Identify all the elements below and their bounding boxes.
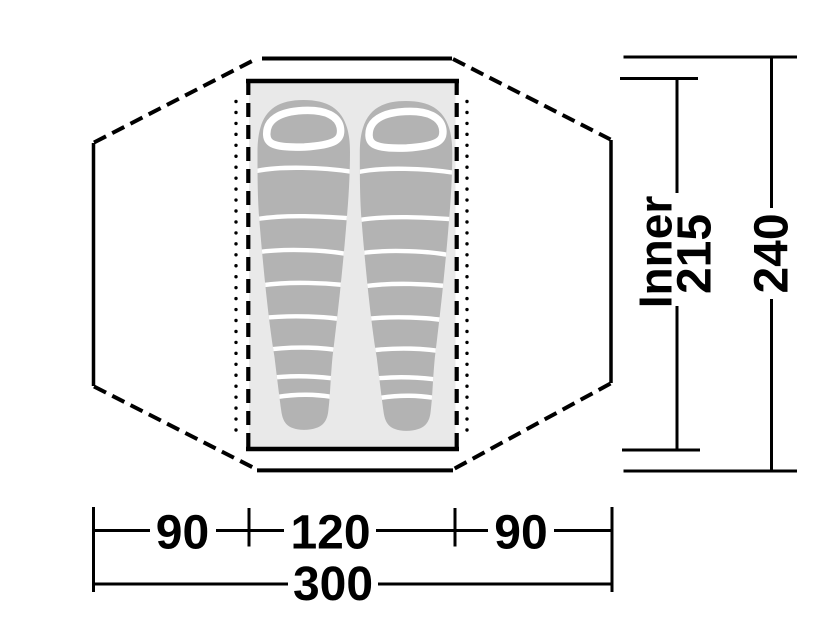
svg-text:215: 215 — [669, 214, 722, 294]
svg-text:90: 90 — [156, 507, 209, 560]
svg-text:90: 90 — [494, 507, 547, 560]
svg-text:120: 120 — [290, 507, 370, 560]
svg-text:240: 240 — [746, 213, 799, 293]
svg-text:300: 300 — [293, 558, 373, 611]
